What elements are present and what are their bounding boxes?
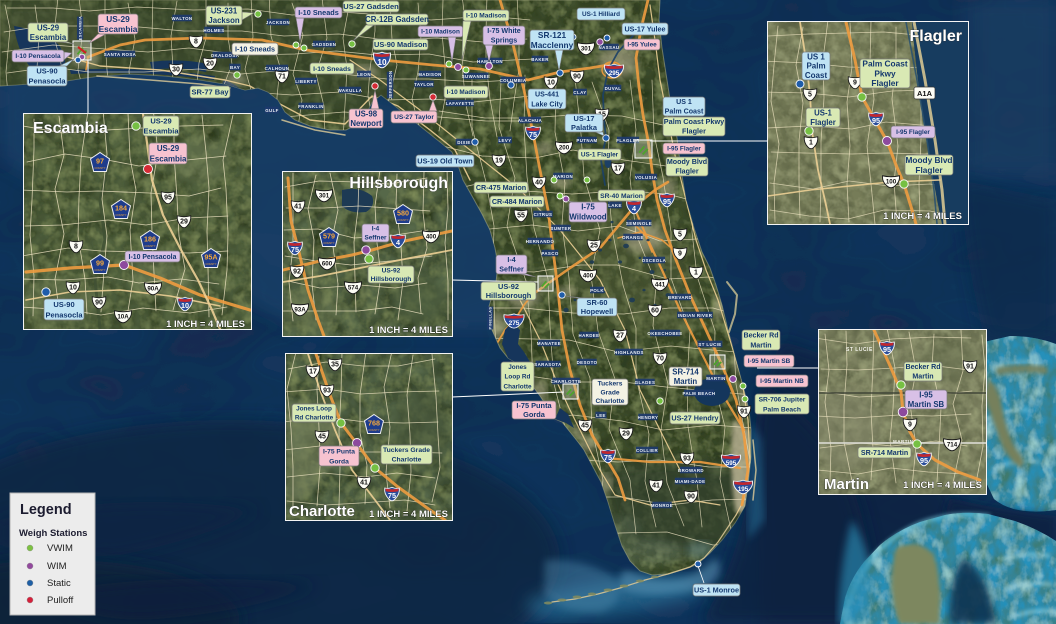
svg-text:NASSAU: NASSAU <box>599 45 620 50</box>
svg-text:93: 93 <box>683 456 691 463</box>
svg-text:95: 95 <box>164 195 172 202</box>
svg-text:10: 10 <box>377 58 387 67</box>
svg-text:93A: 93A <box>294 306 306 313</box>
svg-text:MANATEE: MANATEE <box>537 341 561 346</box>
svg-text:SR-121: SR-121 <box>538 30 567 40</box>
svg-text:91: 91 <box>740 409 748 416</box>
svg-text:17: 17 <box>309 369 317 376</box>
svg-text:VWIM: VWIM <box>47 543 73 554</box>
svg-text:GULF: GULF <box>265 108 279 113</box>
svg-text:95A: 95A <box>204 253 217 262</box>
svg-text:I-10 Sneads: I-10 Sneads <box>235 44 275 53</box>
svg-text:75: 75 <box>388 491 396 500</box>
svg-text:10: 10 <box>69 285 77 292</box>
svg-text:Palm Coast Pkwy: Palm Coast Pkwy <box>664 117 725 126</box>
svg-text:VOLUSIA: VOLUSIA <box>635 175 658 180</box>
svg-text:Springs: Springs <box>491 37 517 45</box>
svg-text:1: 1 <box>694 270 698 277</box>
svg-text:Palm Coast: Palm Coast <box>665 108 704 116</box>
svg-text:US-27 Gadsden: US-27 Gadsden <box>343 2 399 11</box>
svg-text:I-10 Pensacola: I-10 Pensacola <box>129 254 177 261</box>
svg-text:PASCO: PASCO <box>541 251 558 256</box>
svg-text:POLK: POLK <box>590 288 604 293</box>
svg-text:95: 95 <box>883 345 891 354</box>
svg-text:Tuckers Grade: Tuckers Grade <box>383 447 430 454</box>
svg-text:PUTNAM: PUTNAM <box>576 138 597 143</box>
svg-text:US-19 Old Town: US-19 Old Town <box>417 157 472 166</box>
svg-text:Flagler: Flagler <box>871 78 899 88</box>
svg-text:Flagler: Flagler <box>682 127 706 136</box>
svg-text:COLUMBIA: COLUMBIA <box>500 78 527 83</box>
svg-text:US-90: US-90 <box>36 67 57 76</box>
svg-text:HENDRY: HENDRY <box>638 415 659 420</box>
svg-text:Gorda: Gorda <box>523 410 546 419</box>
svg-text:I-95 Flagler: I-95 Flagler <box>896 129 930 136</box>
svg-text:JEFFERSON: JEFFERSON <box>388 71 393 100</box>
svg-text:Palm: Palm <box>806 62 825 71</box>
svg-text:1: 1 <box>809 140 813 147</box>
svg-text:Palatka: Palatka <box>571 123 598 132</box>
svg-text:CR-484 Marion: CR-484 Marion <box>492 197 542 206</box>
svg-text:8: 8 <box>194 39 198 46</box>
svg-text:COUNTY: COUNTY <box>95 166 106 170</box>
svg-text:Pulloff: Pulloff <box>47 595 74 606</box>
svg-text:I-4: I-4 <box>507 256 515 264</box>
svg-text:WIM: WIM <box>47 561 67 572</box>
svg-text:10A: 10A <box>117 313 129 320</box>
svg-text:MARTIN: MARTIN <box>706 376 725 381</box>
svg-text:91: 91 <box>966 364 974 371</box>
svg-text:SR-706 Jupiter: SR-706 Jupiter <box>759 396 806 403</box>
svg-text:OKEECHOBEE: OKEECHOBEE <box>647 331 682 336</box>
svg-text:US-1 Hilliard: US-1 Hilliard <box>582 11 620 18</box>
svg-text:Flagler: Flagler <box>910 28 962 45</box>
svg-text:LEON: LEON <box>357 72 371 77</box>
svg-text:184: 184 <box>115 204 127 213</box>
svg-text:92: 92 <box>293 269 301 276</box>
svg-text:60: 60 <box>651 308 659 315</box>
svg-text:Escambia: Escambia <box>99 24 138 34</box>
svg-text:17: 17 <box>614 166 622 173</box>
svg-text:9: 9 <box>678 251 682 258</box>
svg-text:JACKSON: JACKSON <box>266 20 290 25</box>
svg-text:US-29: US-29 <box>150 117 171 126</box>
svg-text:600: 600 <box>322 260 333 267</box>
svg-text:ESCAMBIA: ESCAMBIA <box>78 16 83 41</box>
svg-text:1 INCH = 4 MILES: 1 INCH = 4 MILES <box>369 509 448 520</box>
svg-text:BAY: BAY <box>230 65 240 70</box>
svg-text:MADISON: MADISON <box>418 72 442 77</box>
svg-text:8: 8 <box>74 244 78 251</box>
svg-text:90: 90 <box>573 74 581 81</box>
svg-text:I-10 Pensacola: I-10 Pensacola <box>15 53 61 60</box>
svg-text:COUNTY: COUNTY <box>324 241 335 245</box>
svg-text:US-1 Monroe: US-1 Monroe <box>694 586 739 595</box>
svg-text:US 1: US 1 <box>676 98 692 106</box>
svg-text:Jackson: Jackson <box>208 16 239 25</box>
svg-text:1 INCH = 4 MILES: 1 INCH = 4 MILES <box>369 325 448 336</box>
svg-text:MIAMI-DADE: MIAMI-DADE <box>675 479 706 484</box>
svg-text:DIXIE: DIXIE <box>457 140 470 145</box>
svg-text:CR-475 Marion: CR-475 Marion <box>476 183 526 192</box>
svg-text:Seffner: Seffner <box>364 235 387 242</box>
svg-text:Charlotte: Charlotte <box>503 383 531 390</box>
svg-text:US-27 Taylor: US-27 Taylor <box>394 114 434 121</box>
svg-text:US-17 Yulee: US-17 Yulee <box>624 24 665 33</box>
svg-text:29: 29 <box>622 431 630 438</box>
svg-text:CLAY: CLAY <box>573 90 586 95</box>
svg-text:Martin: Martin <box>674 377 698 386</box>
svg-text:4: 4 <box>396 238 400 247</box>
svg-text:BAKER: BAKER <box>531 57 549 62</box>
svg-text:SARASOTA: SARASOTA <box>534 362 562 367</box>
svg-text:Charlotte: Charlotte <box>596 398 625 405</box>
svg-text:29: 29 <box>180 219 188 226</box>
svg-text:HERNANDO: HERNANDO <box>526 239 555 244</box>
svg-text:714: 714 <box>947 441 958 448</box>
svg-text:US-441: US-441 <box>535 90 559 98</box>
svg-text:WAKULLA: WAKULLA <box>338 88 363 93</box>
svg-text:I-75 Punta: I-75 Punta <box>516 401 552 410</box>
svg-text:Hillsborough: Hillsborough <box>486 291 532 300</box>
svg-text:45: 45 <box>581 423 589 430</box>
svg-text:US-92: US-92 <box>382 268 401 275</box>
svg-text:I-4: I-4 <box>372 226 380 233</box>
svg-text:US-231: US-231 <box>211 6 238 15</box>
svg-text:PALM BEACH: PALM BEACH <box>683 391 716 396</box>
svg-text:Newport: Newport <box>350 119 382 128</box>
svg-text:US-90 Madison: US-90 Madison <box>374 40 427 49</box>
svg-text:MARTIN: MARTIN <box>893 439 914 444</box>
svg-text:CHARLOTTE: CHARLOTTE <box>551 379 582 384</box>
svg-text:OSCEOLA: OSCEOLA <box>642 258 667 263</box>
svg-text:5: 5 <box>808 92 812 99</box>
svg-text:I-75 White: I-75 White <box>487 27 521 35</box>
svg-text:FRANKLIN: FRANKLIN <box>298 104 324 109</box>
svg-text:US-98: US-98 <box>355 109 378 118</box>
svg-text:41: 41 <box>652 483 660 490</box>
svg-text:Escambia: Escambia <box>150 154 187 163</box>
svg-text:Moody Blvd: Moody Blvd <box>905 155 952 165</box>
svg-text:I-75 Punta: I-75 Punta <box>323 448 355 455</box>
svg-text:90: 90 <box>687 494 695 501</box>
svg-text:LEE: LEE <box>596 413 606 418</box>
svg-text:Grade: Grade <box>600 389 619 396</box>
svg-text:LIBERTY: LIBERTY <box>295 79 317 84</box>
svg-text:100: 100 <box>886 178 897 185</box>
svg-text:Penasocla: Penasocla <box>45 310 83 319</box>
svg-text:US-90: US-90 <box>53 300 74 309</box>
svg-text:Static: Static <box>47 578 71 589</box>
svg-text:95: 95 <box>872 116 880 125</box>
svg-text:I-95 Yulee: I-95 Yulee <box>627 42 657 49</box>
svg-text:Seffner: Seffner <box>499 266 524 274</box>
svg-text:Escambia: Escambia <box>143 127 179 136</box>
svg-text:Jones Loop: Jones Loop <box>296 406 332 413</box>
svg-text:35: 35 <box>331 362 339 369</box>
svg-text:Coast: Coast <box>805 71 828 80</box>
svg-text:DUVAL: DUVAL <box>605 86 622 91</box>
svg-text:30: 30 <box>172 67 180 74</box>
svg-text:40: 40 <box>535 180 543 187</box>
svg-text:Escambia: Escambia <box>33 120 108 137</box>
svg-text:US-1: US-1 <box>814 108 832 117</box>
svg-text:SEMINOLE: SEMINOLE <box>626 221 652 226</box>
svg-text:Hillsborough: Hillsborough <box>349 175 448 192</box>
svg-text:US-17: US-17 <box>574 114 595 123</box>
svg-text:I-10 Madison: I-10 Madison <box>466 13 506 20</box>
svg-text:SUWANNEE: SUWANNEE <box>462 74 491 79</box>
svg-text:ALACHUA: ALACHUA <box>518 118 543 123</box>
svg-text:10: 10 <box>547 80 555 87</box>
svg-text:SR-60: SR-60 <box>587 298 608 307</box>
svg-text:US-29: US-29 <box>37 23 60 32</box>
svg-text:25: 25 <box>590 243 598 250</box>
svg-text:SR-77 Bay: SR-77 Bay <box>191 88 229 97</box>
svg-text:75: 75 <box>604 453 612 462</box>
svg-text:5: 5 <box>678 232 682 239</box>
svg-text:41: 41 <box>294 204 302 211</box>
svg-text:441: 441 <box>655 281 666 288</box>
svg-text:US-1 Flagler: US-1 Flagler <box>581 152 619 159</box>
svg-text:ORANGE: ORANGE <box>622 235 644 240</box>
svg-text:Flagler: Flagler <box>810 118 836 127</box>
svg-text:COUNTY: COUNTY <box>398 218 409 222</box>
svg-text:COUNTY: COUNTY <box>206 262 217 266</box>
svg-text:SUMTER: SUMTER <box>551 226 572 231</box>
svg-text:US-29: US-29 <box>157 144 180 153</box>
svg-text:CITRUS: CITRUS <box>534 212 553 217</box>
svg-text:Legend: Legend <box>20 502 72 518</box>
svg-text:Wildwood: Wildwood <box>569 213 606 222</box>
svg-text:Weigh Stations: Weigh Stations <box>19 528 87 539</box>
svg-text:Palm Coast: Palm Coast <box>862 59 907 69</box>
svg-text:295: 295 <box>609 70 620 77</box>
svg-text:70: 70 <box>656 356 664 363</box>
svg-text:400: 400 <box>583 272 594 279</box>
svg-text:9: 9 <box>853 80 857 87</box>
svg-text:Martin SB: Martin SB <box>908 400 945 409</box>
svg-text:Escambia: Escambia <box>30 33 67 42</box>
svg-text:LAFAYETTE: LAFAYETTE <box>446 101 475 106</box>
svg-text:4: 4 <box>632 204 636 213</box>
svg-text:93: 93 <box>323 388 331 395</box>
svg-text:COUNTY: COUNTY <box>116 213 127 217</box>
svg-text:574: 574 <box>348 284 359 291</box>
svg-text:Hopewell: Hopewell <box>581 307 613 316</box>
svg-text:75: 75 <box>529 130 537 139</box>
svg-text:BROWARD: BROWARD <box>678 468 704 473</box>
svg-text:Gorda: Gorda <box>329 458 349 465</box>
svg-text:HARDEE: HARDEE <box>579 333 600 338</box>
svg-text:HOLMES: HOLMES <box>203 28 224 33</box>
svg-text:COUNTY: COUNTY <box>95 268 106 272</box>
svg-text:INDIAN RIVER: INDIAN RIVER <box>678 313 713 318</box>
svg-text:579: 579 <box>323 232 335 241</box>
svg-text:1 INCH = 4 MILES: 1 INCH = 4 MILES <box>883 211 962 222</box>
svg-text:45: 45 <box>318 434 326 441</box>
svg-text:SANTA ROSA: SANTA ROSA <box>104 52 137 57</box>
svg-text:97: 97 <box>96 157 104 166</box>
svg-text:COUNTY: COUNTY <box>369 428 380 432</box>
svg-text:WALTON: WALTON <box>171 16 192 21</box>
svg-text:Macclenny: Macclenny <box>531 40 574 50</box>
svg-text:301: 301 <box>581 45 592 52</box>
svg-text:SR-40 Marion: SR-40 Marion <box>600 193 643 200</box>
svg-text:CALHOUN: CALHOUN <box>265 66 290 71</box>
svg-text:595: 595 <box>726 460 737 467</box>
svg-text:A1A: A1A <box>917 89 933 98</box>
svg-text:COUNTY: COUNTY <box>145 244 156 248</box>
svg-text:9: 9 <box>908 422 912 429</box>
svg-text:55: 55 <box>517 213 525 220</box>
svg-text:Flagler: Flagler <box>915 165 943 175</box>
svg-text:41: 41 <box>360 480 368 487</box>
svg-text:DESOTO: DESOTO <box>577 360 598 365</box>
svg-text:20: 20 <box>206 61 214 68</box>
svg-text:1 INCH = 4 MILES: 1 INCH = 4 MILES <box>166 319 245 330</box>
svg-text:Rd Charlotte: Rd Charlotte <box>295 415 334 422</box>
svg-text:I-10 Madison: I-10 Madison <box>421 29 460 36</box>
svg-text:90A: 90A <box>147 285 159 292</box>
svg-text:TAYLOR: TAYLOR <box>414 82 434 87</box>
svg-text:Tuckers: Tuckers <box>598 381 623 388</box>
svg-text:ST LUCIE: ST LUCIE <box>698 342 721 347</box>
svg-text:Becker Rd: Becker Rd <box>743 331 778 339</box>
svg-text:Martin: Martin <box>824 476 869 493</box>
svg-text:71: 71 <box>278 74 286 81</box>
svg-text:Hillsborough: Hillsborough <box>371 276 412 283</box>
svg-text:GLADES: GLADES <box>635 380 656 385</box>
svg-text:195: 195 <box>738 486 749 493</box>
svg-text:US 1: US 1 <box>807 52 825 61</box>
svg-text:I-95 Martin NB: I-95 Martin NB <box>760 378 804 385</box>
svg-text:Palm Beach: Palm Beach <box>763 406 801 413</box>
svg-text:Penasocla: Penasocla <box>28 77 66 86</box>
svg-text:PINELLAS: PINELLAS <box>488 307 493 330</box>
svg-text:I-10 Sneads: I-10 Sneads <box>298 8 339 17</box>
svg-text:I-10 Sneads: I-10 Sneads <box>313 66 351 73</box>
svg-text:US-27 Hendry: US-27 Hendry <box>671 414 718 423</box>
svg-text:I-95 Flagler: I-95 Flagler <box>667 146 701 153</box>
svg-text:I-95 Martin SB: I-95 Martin SB <box>748 358 791 365</box>
svg-text:186: 186 <box>144 235 156 244</box>
svg-text:1 INCH = 4 MILES: 1 INCH = 4 MILES <box>903 480 982 491</box>
svg-text:US-92: US-92 <box>498 282 519 291</box>
svg-text:95: 95 <box>663 197 671 206</box>
svg-text:Martin: Martin <box>912 373 933 381</box>
svg-text:Charlotte: Charlotte <box>392 457 422 464</box>
svg-text:HIGHLANDS: HIGHLANDS <box>614 350 644 355</box>
svg-text:Jones: Jones <box>508 364 527 371</box>
svg-text:Moody Blvd: Moody Blvd <box>667 158 707 166</box>
svg-text:768: 768 <box>368 419 380 428</box>
svg-text:I-75: I-75 <box>581 203 595 212</box>
svg-text:SR-714: SR-714 <box>672 367 699 376</box>
svg-text:US-29: US-29 <box>106 14 130 24</box>
svg-text:Lake City: Lake City <box>531 100 563 108</box>
svg-text:Flagler: Flagler <box>675 168 698 176</box>
svg-text:Charlotte: Charlotte <box>289 503 355 520</box>
svg-text:275: 275 <box>509 320 520 327</box>
svg-text:GADSDEN: GADSDEN <box>312 42 337 47</box>
svg-text:75: 75 <box>291 245 299 254</box>
svg-text:Becker Rd: Becker Rd <box>905 363 940 371</box>
svg-text:I-95: I-95 <box>919 390 933 399</box>
svg-text:90: 90 <box>95 300 103 307</box>
svg-text:580: 580 <box>397 209 409 218</box>
svg-text:CR-12B Gadsden: CR-12B Gadsden <box>365 15 429 24</box>
svg-text:301: 301 <box>319 192 330 199</box>
svg-text:BREVARD: BREVARD <box>668 295 692 300</box>
svg-text:Loop Rd: Loop Rd <box>505 374 531 381</box>
svg-text:10: 10 <box>181 301 189 310</box>
svg-text:200: 200 <box>559 144 570 151</box>
svg-text:SR-714 Martin: SR-714 Martin <box>861 449 908 457</box>
svg-text:MONROE: MONROE <box>651 503 673 508</box>
svg-text:LEVY: LEVY <box>498 138 511 143</box>
svg-text:Pkwy: Pkwy <box>874 68 896 78</box>
svg-text:99: 99 <box>96 259 104 268</box>
svg-text:95: 95 <box>920 456 928 465</box>
svg-text:I-10 Madison: I-10 Madison <box>447 89 486 96</box>
svg-text:27: 27 <box>616 333 624 340</box>
svg-text:ST LUCIE: ST LUCIE <box>846 347 873 353</box>
svg-text:400: 400 <box>426 233 437 240</box>
svg-text:19: 19 <box>495 158 503 165</box>
svg-text:LAKE: LAKE <box>608 203 622 208</box>
svg-text:Martin: Martin <box>750 341 771 349</box>
svg-text:COLLIER: COLLIER <box>636 448 658 453</box>
